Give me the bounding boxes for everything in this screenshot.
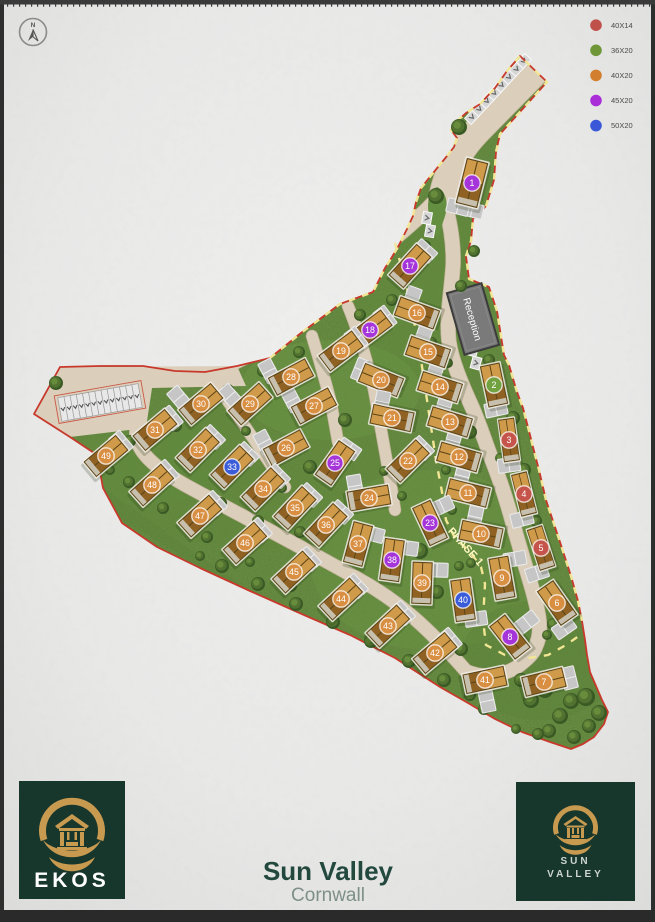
svg-text:37: 37 — [353, 539, 363, 549]
svg-text:Sun Valley: Sun Valley — [263, 856, 394, 886]
svg-text:48: 48 — [147, 480, 157, 490]
svg-text:28: 28 — [286, 372, 296, 382]
svg-text:15: 15 — [423, 347, 433, 357]
svg-text:46: 46 — [240, 538, 250, 548]
svg-text:25: 25 — [330, 458, 340, 468]
svg-text:SUN: SUN — [560, 856, 590, 867]
svg-text:38: 38 — [387, 555, 397, 565]
svg-text:33: 33 — [227, 462, 237, 472]
svg-text:18: 18 — [365, 325, 375, 335]
svg-text:10: 10 — [476, 529, 486, 539]
svg-text:2: 2 — [492, 380, 497, 390]
svg-text:14: 14 — [435, 382, 445, 392]
svg-text:31: 31 — [150, 425, 160, 435]
svg-text:30: 30 — [196, 399, 206, 409]
svg-text:49: 49 — [101, 451, 111, 461]
svg-text:36: 36 — [321, 520, 331, 530]
svg-text:8: 8 — [508, 632, 513, 642]
svg-text:6: 6 — [555, 598, 560, 608]
svg-text:N: N — [31, 22, 36, 29]
svg-text:EKOS: EKOS — [34, 869, 110, 892]
svg-text:42: 42 — [430, 648, 440, 658]
svg-text:24: 24 — [364, 493, 374, 503]
svg-text:17: 17 — [405, 261, 415, 271]
svg-text:22: 22 — [403, 456, 413, 466]
svg-text:7: 7 — [542, 677, 547, 687]
svg-text:16: 16 — [412, 308, 422, 318]
svg-text:3: 3 — [507, 435, 512, 445]
svg-text:21: 21 — [387, 413, 397, 423]
svg-text:26: 26 — [281, 443, 291, 453]
svg-text:40: 40 — [458, 595, 468, 605]
svg-text:5: 5 — [539, 543, 544, 553]
svg-text:VALLEY: VALLEY — [547, 869, 604, 880]
svg-text:12: 12 — [454, 452, 464, 462]
svg-text:1: 1 — [470, 178, 475, 188]
svg-text:40X20: 40X20 — [611, 71, 633, 80]
svg-text:35: 35 — [290, 503, 300, 513]
svg-text:44: 44 — [336, 594, 346, 604]
svg-text:50X20: 50X20 — [611, 121, 633, 130]
svg-text:13: 13 — [445, 417, 455, 427]
svg-text:41: 41 — [480, 675, 490, 685]
svg-text:20: 20 — [376, 375, 386, 385]
svg-text:4: 4 — [522, 489, 527, 499]
svg-text:23: 23 — [425, 518, 435, 528]
svg-text:47: 47 — [195, 511, 205, 521]
svg-text:27: 27 — [309, 401, 319, 411]
svg-text:36X20: 36X20 — [611, 46, 633, 55]
svg-text:43: 43 — [383, 621, 393, 631]
svg-text:19: 19 — [336, 346, 346, 356]
svg-text:45: 45 — [289, 567, 299, 577]
svg-text:9: 9 — [500, 573, 505, 583]
svg-text:11: 11 — [463, 488, 472, 498]
svg-text:40X14: 40X14 — [611, 21, 633, 30]
svg-text:32: 32 — [193, 445, 203, 455]
svg-text:34: 34 — [258, 484, 268, 494]
svg-text:29: 29 — [245, 399, 255, 409]
svg-text:45X20: 45X20 — [611, 96, 633, 105]
svg-text:39: 39 — [417, 578, 427, 588]
svg-text:Cornwall: Cornwall — [291, 885, 365, 906]
